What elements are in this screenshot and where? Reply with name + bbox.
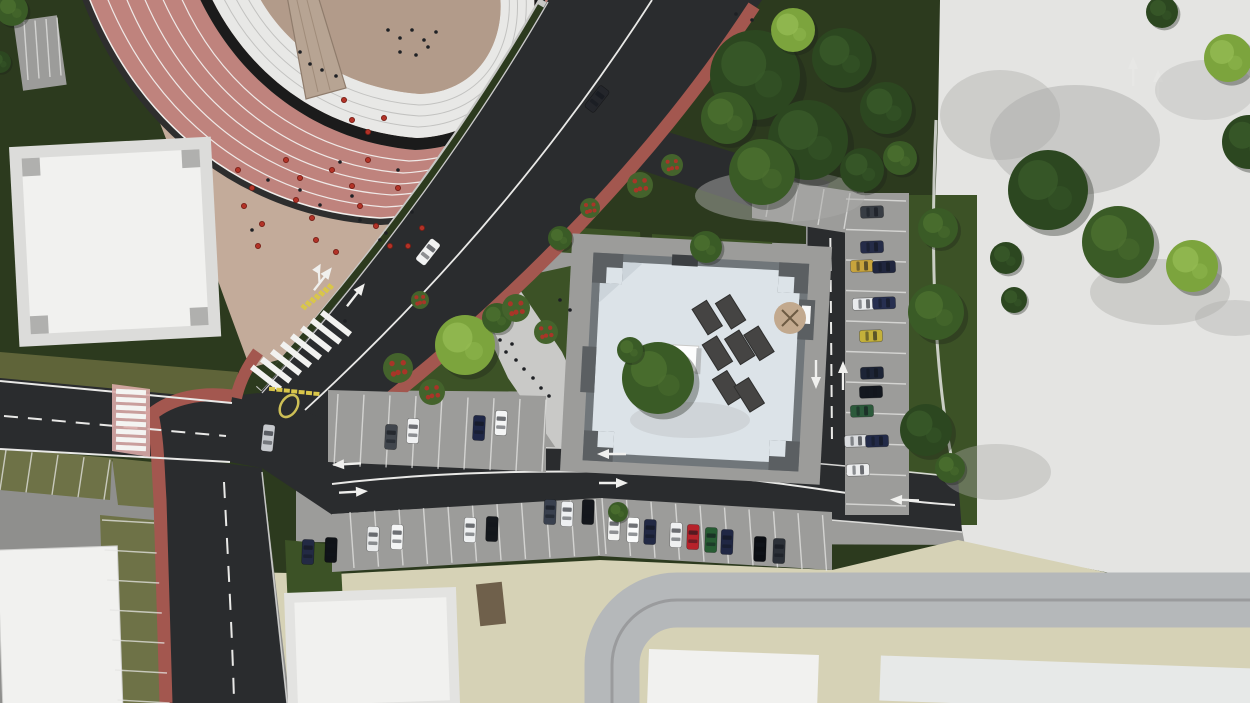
site-plan-svg (0, 0, 1250, 703)
person (298, 188, 302, 192)
person (250, 228, 254, 232)
car (872, 297, 895, 310)
person (539, 386, 543, 390)
road-bar (276, 388, 282, 392)
person (384, 231, 388, 235)
car (859, 386, 882, 399)
car (384, 424, 397, 450)
flowering-bush (383, 353, 413, 383)
cafe-table (283, 157, 288, 162)
bottom-center-building (284, 587, 460, 703)
cafe-table (293, 197, 298, 202)
roof-notch (190, 307, 209, 326)
road-bar (291, 389, 297, 393)
car (754, 536, 767, 561)
cafe-table (419, 225, 424, 230)
car (846, 464, 869, 477)
cafe-table (241, 203, 246, 208)
car (391, 524, 404, 549)
cafe-table (349, 117, 354, 122)
car (494, 410, 507, 436)
cafe-table (365, 157, 370, 162)
cafe-table (341, 97, 346, 102)
car (367, 526, 380, 551)
person (350, 194, 354, 198)
car (561, 501, 574, 526)
car (850, 260, 873, 273)
left-building-roof (22, 149, 209, 334)
cafe-table (313, 237, 318, 242)
person (410, 28, 414, 32)
person (547, 394, 551, 398)
person (422, 38, 426, 42)
car (860, 241, 883, 254)
br-white-roof-1 (647, 649, 819, 703)
person (398, 50, 402, 54)
person (531, 376, 535, 380)
cafe-table (349, 183, 354, 188)
person (396, 168, 400, 172)
aerial-site-render (0, 0, 1250, 703)
road-bar (306, 391, 312, 395)
person (510, 342, 514, 346)
cafe-table (405, 243, 410, 248)
cafe-table (387, 243, 392, 248)
person (386, 28, 390, 32)
car (844, 435, 867, 448)
car (721, 529, 734, 554)
person (378, 238, 382, 242)
car (860, 206, 883, 219)
car (464, 517, 477, 542)
cafe-table (235, 167, 240, 172)
cafe-table (329, 167, 334, 172)
car (872, 261, 895, 274)
bottom-left-building (0, 546, 123, 703)
flowering-bush (411, 291, 429, 309)
person (434, 30, 438, 34)
car (582, 499, 595, 524)
person (750, 18, 754, 22)
cafe-table (381, 115, 386, 120)
car (472, 415, 485, 441)
central-building (560, 233, 832, 484)
car (644, 519, 657, 544)
cafe-table (365, 129, 370, 134)
bc-building-roof (294, 597, 450, 703)
car (302, 539, 315, 564)
cafe-table (259, 221, 264, 226)
road-bar (284, 388, 290, 392)
car (325, 537, 338, 562)
person (358, 218, 362, 222)
car (859, 330, 882, 343)
car (544, 499, 557, 524)
roof-notch (30, 315, 49, 334)
roof-notch (181, 149, 200, 168)
flowering-bush (580, 198, 600, 218)
flowering-bush (534, 320, 558, 344)
road-bar (298, 390, 304, 394)
car (865, 435, 888, 448)
person (338, 160, 342, 164)
person (504, 350, 508, 354)
person (398, 36, 402, 40)
person (734, 12, 738, 16)
flowering-bush (419, 379, 445, 405)
tree-shadow (940, 70, 1060, 160)
cafe-table (333, 249, 338, 254)
person (498, 338, 502, 342)
left-building (9, 137, 221, 347)
person (298, 50, 302, 54)
person (558, 298, 562, 302)
car (670, 522, 683, 547)
person (522, 367, 526, 371)
cafe-table (373, 223, 378, 228)
car (705, 527, 718, 552)
person (308, 62, 312, 66)
car (850, 405, 873, 418)
cafe-table (395, 185, 400, 190)
person (414, 53, 418, 57)
flowering-bush (661, 154, 683, 176)
car (261, 424, 276, 452)
roof-notch (22, 158, 41, 177)
car (687, 524, 700, 549)
car (773, 538, 786, 563)
flowering-bush (627, 172, 653, 198)
cafe-table (357, 203, 362, 208)
cafe-table (309, 215, 314, 220)
person (410, 210, 414, 214)
road-bar (313, 392, 319, 396)
cafe-table (297, 175, 302, 180)
car (486, 516, 499, 541)
dirt-patch (476, 582, 506, 626)
person (514, 358, 518, 362)
person (320, 68, 324, 72)
person (266, 178, 270, 182)
bl-building-roof (0, 546, 123, 703)
cafe-table (255, 243, 260, 248)
car (860, 367, 883, 380)
car (627, 517, 640, 542)
car (406, 418, 419, 444)
person (334, 74, 338, 78)
person (568, 308, 572, 312)
person (343, 319, 347, 323)
person (318, 203, 322, 207)
person (426, 45, 430, 49)
flowering-bush (502, 294, 530, 322)
road-bar (269, 387, 275, 391)
cafe-table (249, 185, 254, 190)
